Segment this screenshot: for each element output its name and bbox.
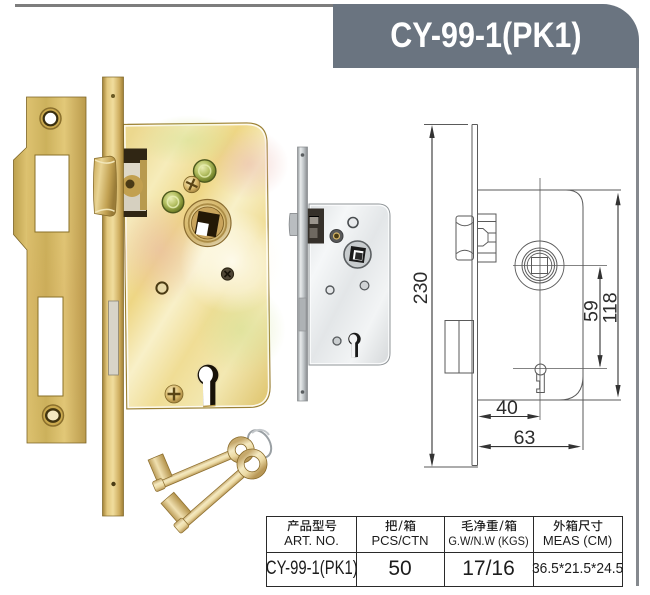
svg-text:118: 118 — [600, 292, 622, 323]
svg-text:63: 63 — [514, 427, 536, 449]
svg-text:230: 230 — [410, 272, 432, 305]
svg-text:40: 40 — [496, 397, 518, 419]
